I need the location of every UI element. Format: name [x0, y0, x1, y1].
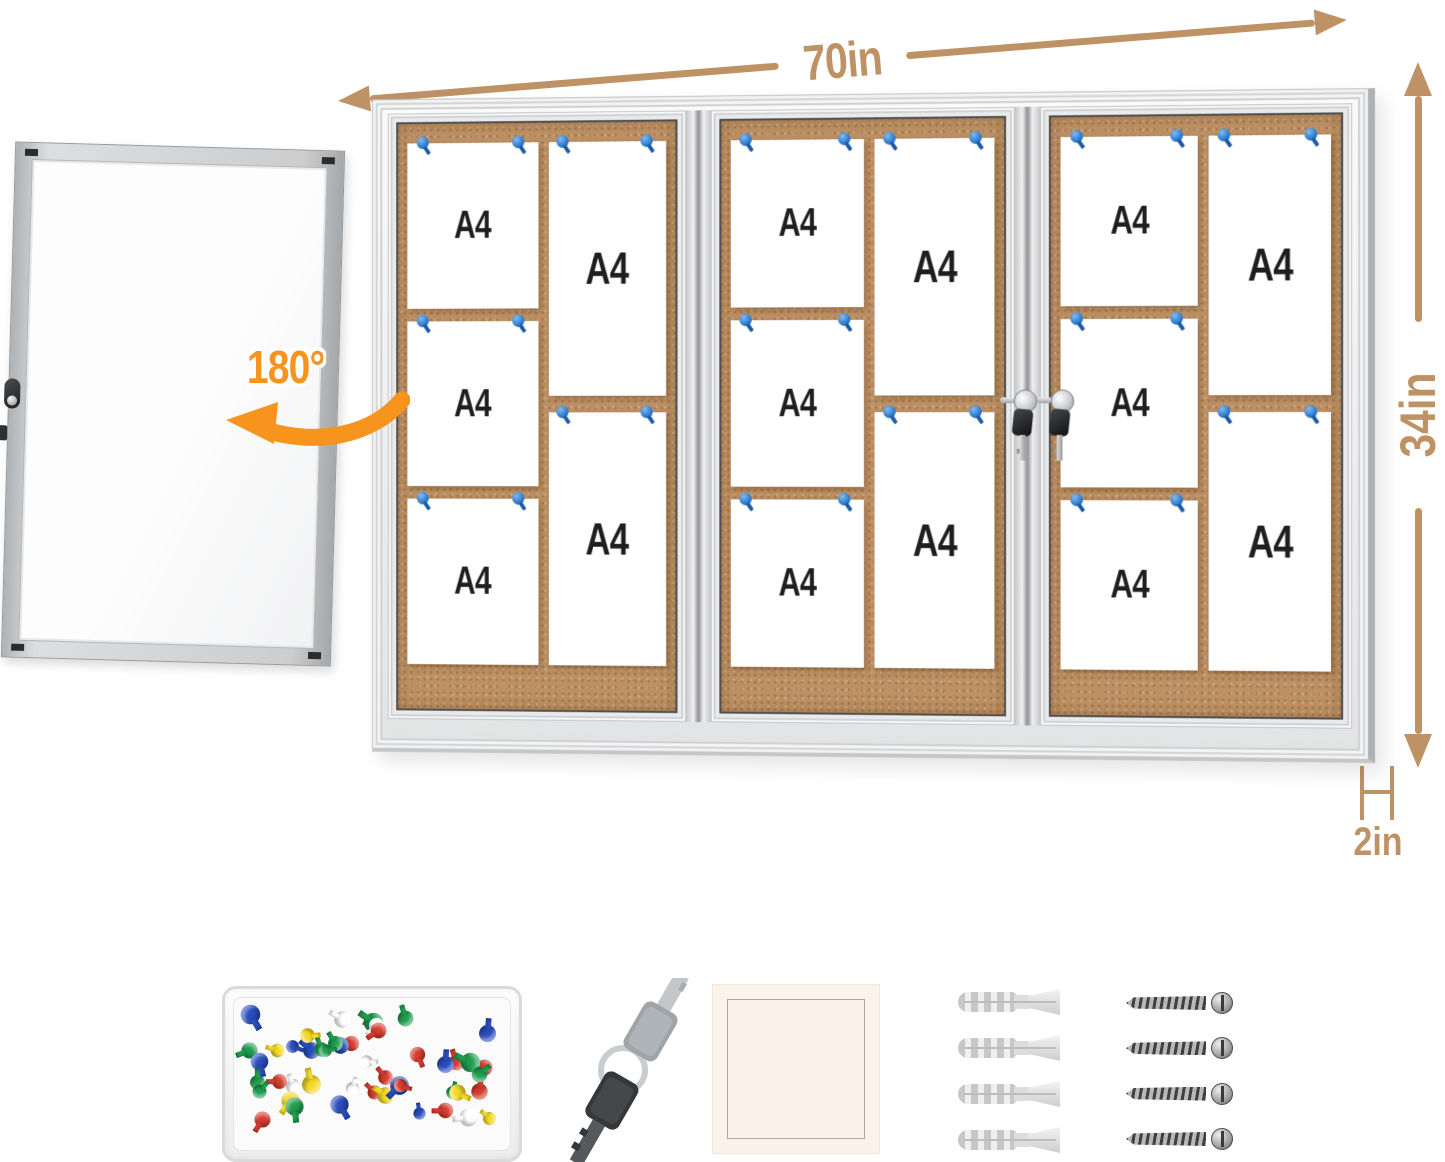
- arrow-right-icon: [1314, 7, 1348, 35]
- screw-icon: [1126, 1037, 1233, 1059]
- push-pin: [396, 1009, 415, 1028]
- lock-with-key: [1008, 389, 1041, 508]
- paper-size-label: A4: [454, 382, 491, 426]
- push-pin: [318, 1043, 332, 1057]
- paper-size-label: A4: [586, 512, 629, 565]
- pinned-paper: A4: [407, 321, 538, 487]
- arrow-down-icon: [1404, 734, 1432, 768]
- push-pin: [470, 1082, 488, 1100]
- push-pin: [269, 1042, 286, 1059]
- push-pin-icon: [512, 135, 529, 155]
- cork-panel: A4 A4 A4 A4 A4: [719, 116, 1006, 716]
- push-pin: [480, 1109, 498, 1127]
- push-pin: [446, 1082, 468, 1104]
- pinned-paper: A4: [875, 138, 995, 395]
- push-pin-icon: [740, 493, 757, 513]
- push-pin-icon: [512, 314, 529, 333]
- push-pin-icon: [1171, 129, 1189, 149]
- depth-label: 2in: [1344, 820, 1412, 865]
- push-pin: [252, 1108, 274, 1130]
- key-icon: [1049, 408, 1071, 437]
- dimension-line: [906, 19, 1315, 59]
- rotation-arrow-icon: [220, 388, 410, 454]
- depth-bracket-icon: [1360, 766, 1394, 820]
- push-pin: [331, 1009, 354, 1032]
- hinge-bracket-icon: [308, 652, 321, 659]
- pinned-paper: A4: [407, 142, 538, 308]
- push-pin: [237, 1001, 264, 1028]
- wall-anchor-icon: [958, 988, 1066, 1016]
- push-pin-icon: [740, 133, 757, 153]
- pushpin-box-image: [222, 986, 522, 1162]
- push-pin-icon: [1171, 311, 1189, 331]
- push-pin: [407, 1044, 427, 1064]
- pushpin-box-fill: [233, 997, 511, 1151]
- hinge-bracket-icon: [25, 149, 38, 156]
- board-section-3: A4 A4 A4 A4 A4: [1040, 103, 1352, 729]
- paper-size-label: A4: [1110, 199, 1149, 244]
- pinned-paper: A4: [1209, 412, 1332, 672]
- hinge-bracket-icon: [11, 644, 24, 651]
- push-pin-icon: [512, 492, 529, 511]
- screw-icon: [1126, 1128, 1233, 1150]
- lock-with-key: [1045, 389, 1078, 508]
- paper-size-label: A4: [778, 561, 816, 605]
- pinned-paper: A4: [730, 500, 864, 668]
- height-label: 34in: [1389, 372, 1445, 457]
- push-pin-icon: [557, 405, 574, 424]
- push-pin: [459, 1107, 479, 1127]
- screw-icon: [1126, 992, 1233, 1014]
- push-pin-icon: [969, 405, 986, 425]
- door-lock-icon: [4, 379, 21, 409]
- paper-size-label: A4: [778, 381, 816, 425]
- hinge-bracket-icon: [322, 157, 335, 164]
- push-pin: [436, 1055, 454, 1073]
- push-pin-icon: [640, 134, 657, 154]
- door-clip-icon: [0, 425, 7, 440]
- paper-size-label: A4: [454, 560, 491, 604]
- pinned-paper: A4: [549, 412, 666, 666]
- push-pin-icon: [838, 313, 855, 333]
- product-image: 70in 34in 2in 180° A4: [0, 0, 1445, 1162]
- wall-anchor-icon: [958, 1080, 1066, 1108]
- push-pin: [344, 1080, 360, 1096]
- push-pin: [327, 1092, 352, 1117]
- paper-size-label: A4: [913, 513, 957, 566]
- push-pin-icon: [1217, 405, 1235, 425]
- paper-size-label: A4: [454, 204, 491, 248]
- pinned-paper: A4: [1061, 136, 1198, 306]
- wall-anchor-icon: [958, 1034, 1066, 1062]
- push-pin-icon: [1070, 130, 1088, 150]
- push-pin-icon: [1070, 312, 1088, 332]
- pinned-paper: A4: [1061, 501, 1198, 671]
- push-pin: [285, 1097, 305, 1117]
- paper-size-label: A4: [586, 242, 629, 295]
- push-pin-icon: [883, 132, 900, 152]
- paper-size-label: A4: [1110, 563, 1149, 608]
- push-pin: [300, 1028, 315, 1043]
- push-pin: [437, 1102, 453, 1118]
- frame-divider: [686, 110, 711, 722]
- door-swing-label: 180°: [247, 340, 324, 394]
- paper-size-label: A4: [1110, 381, 1149, 426]
- push-pin: [478, 1024, 496, 1042]
- arrow-up-icon: [1404, 62, 1432, 96]
- push-pin: [413, 1107, 427, 1121]
- door-locks: [1008, 389, 1082, 508]
- push-pin-icon: [838, 132, 855, 152]
- push-pin-icon: [417, 492, 434, 511]
- paper-size-label: A4: [778, 201, 816, 245]
- push-pin-icon: [1217, 128, 1235, 148]
- pinned-paper: A4: [730, 320, 864, 488]
- keys-image: [553, 978, 703, 1162]
- wall-anchors-image: [958, 988, 1066, 1154]
- height-dimension: 34in: [1394, 62, 1442, 768]
- pinned-paper: A4: [407, 499, 538, 665]
- push-pin-icon: [1305, 128, 1323, 148]
- push-pin: [300, 1073, 323, 1096]
- push-pin-icon: [838, 493, 855, 513]
- push-pin-icon: [557, 135, 574, 155]
- push-pin-icon: [640, 405, 657, 425]
- paper-size-label: A4: [1247, 238, 1292, 292]
- screws-image: [1126, 992, 1233, 1150]
- wall-anchor-icon: [958, 1126, 1066, 1154]
- push-pin-icon: [969, 131, 986, 151]
- pinned-paper: A4: [730, 139, 864, 307]
- paper-size-label: A4: [913, 240, 957, 293]
- dimension-line: [1415, 508, 1422, 734]
- board-section-2: A4 A4 A4 A4 A4: [710, 107, 1015, 725]
- cork-panel: A4 A4 A4 A4 A4: [1049, 112, 1343, 719]
- dimension-line: [1415, 96, 1422, 322]
- paper-size-label: A4: [1247, 514, 1292, 568]
- board-section-1: A4 A4 A4 A4 A4: [388, 110, 686, 721]
- push-pin-icon: [1171, 494, 1189, 514]
- push-pin-icon: [417, 136, 434, 156]
- pinned-paper: A4: [549, 141, 666, 395]
- key-icon: [1012, 408, 1034, 437]
- push-pin-icon: [1305, 405, 1323, 425]
- lock-lever-icon: [1037, 397, 1052, 403]
- push-pin-icon: [883, 405, 900, 425]
- adhesive-pad-image: [712, 984, 880, 1154]
- push-pin: [360, 1056, 373, 1069]
- push-pin-icon: [740, 313, 757, 333]
- pinned-paper: A4: [1209, 134, 1332, 394]
- arrow-left-icon: [337, 85, 371, 113]
- screw-icon: [1126, 1083, 1233, 1105]
- pinned-paper: A4: [875, 412, 995, 669]
- cork-panel: A4 A4 A4 A4 A4: [396, 119, 677, 713]
- bulletin-board: A4 A4 A4 A4 A4 A4 A4 A4: [372, 88, 1375, 763]
- push-pin-icon: [417, 314, 434, 333]
- width-label: 70in: [801, 28, 884, 92]
- lock-lever-icon: [1000, 397, 1015, 403]
- push-pin: [272, 1074, 287, 1089]
